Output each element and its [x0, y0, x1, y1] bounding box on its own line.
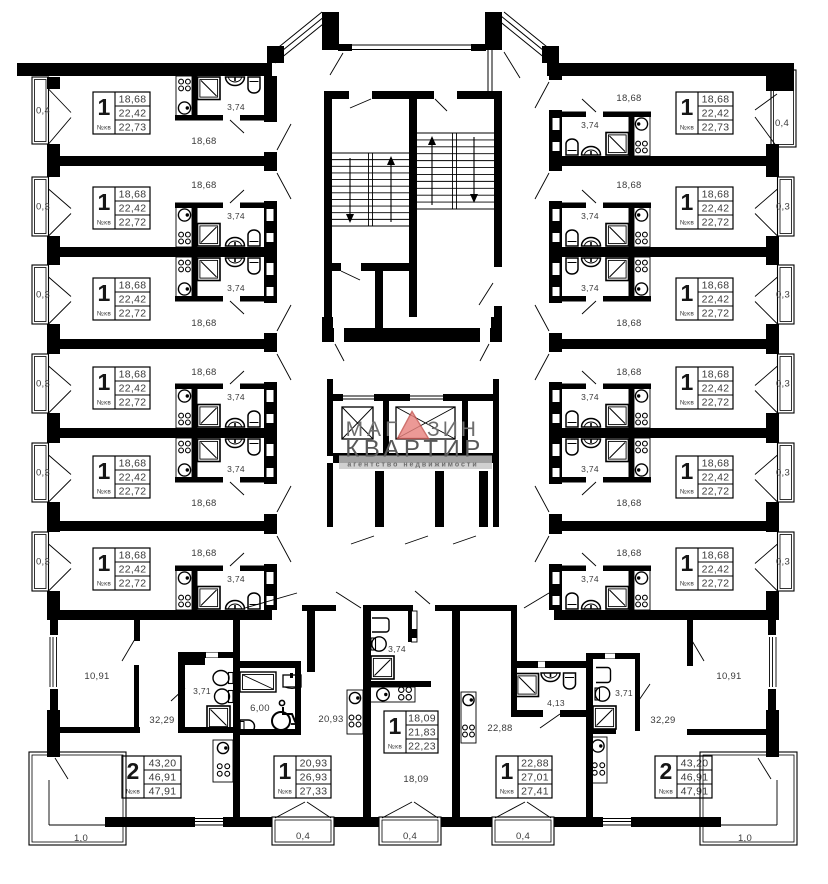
- svg-text:27,33: 27,33: [300, 786, 328, 798]
- svg-text:21,83: 21,83: [408, 727, 436, 739]
- svg-text:18,68: 18,68: [616, 93, 641, 104]
- svg-text:18,68: 18,68: [616, 498, 641, 509]
- svg-text:22,72: 22,72: [119, 217, 147, 229]
- svg-text:0,3: 0,3: [776, 557, 790, 568]
- svg-text:22,72: 22,72: [702, 217, 730, 229]
- svg-text:0,3: 0,3: [776, 468, 790, 479]
- svg-text:№кв: №кв: [680, 489, 694, 496]
- svg-text:0,4: 0,4: [296, 831, 310, 842]
- svg-text:3,74: 3,74: [227, 102, 245, 112]
- svg-text:1: 1: [680, 458, 693, 484]
- svg-text:10,91: 10,91: [716, 671, 741, 682]
- svg-text:1: 1: [97, 458, 110, 484]
- svg-text:22,42: 22,42: [119, 203, 147, 215]
- svg-text:18,68: 18,68: [119, 94, 147, 106]
- svg-text:22,72: 22,72: [119, 308, 147, 320]
- svg-text:18,68: 18,68: [191, 180, 216, 191]
- svg-text:0,3: 0,3: [36, 468, 50, 479]
- svg-text:18,68: 18,68: [702, 280, 730, 292]
- svg-text:18,68: 18,68: [702, 458, 730, 470]
- svg-text:22,42: 22,42: [119, 564, 147, 576]
- svg-text:22,42: 22,42: [702, 383, 730, 395]
- svg-text:43,20: 43,20: [149, 758, 177, 770]
- svg-text:КВАРТИР: КВАРТИР: [345, 436, 485, 463]
- svg-text:18,68: 18,68: [702, 94, 730, 106]
- svg-text:22,42: 22,42: [119, 472, 147, 484]
- svg-text:3,71: 3,71: [615, 688, 633, 698]
- svg-text:1: 1: [97, 280, 110, 306]
- svg-text:1: 1: [97, 550, 110, 576]
- svg-text:№кв: №кв: [388, 744, 402, 751]
- svg-text:22,42: 22,42: [119, 383, 147, 395]
- svg-text:1: 1: [680, 369, 693, 395]
- svg-text:3,74: 3,74: [581, 211, 599, 221]
- svg-text:22,72: 22,72: [119, 578, 147, 590]
- svg-text:1: 1: [97, 189, 110, 215]
- svg-text:20,93: 20,93: [318, 714, 343, 725]
- svg-text:№кв: №кв: [126, 789, 140, 796]
- svg-text:0,3: 0,3: [776, 379, 790, 390]
- svg-text:22,23: 22,23: [408, 741, 436, 753]
- svg-text:22,72: 22,72: [702, 308, 730, 320]
- svg-text:3,74: 3,74: [581, 283, 599, 293]
- svg-text:№кв: №кв: [680, 400, 694, 407]
- svg-text:46,91: 46,91: [149, 772, 177, 784]
- svg-text:№кв: №кв: [278, 789, 292, 796]
- svg-text:1: 1: [278, 758, 291, 784]
- svg-text:№кв: №кв: [97, 220, 111, 227]
- svg-text:20,93: 20,93: [300, 758, 328, 770]
- svg-text:22,42: 22,42: [702, 564, 730, 576]
- svg-text:№кв: №кв: [97, 125, 111, 132]
- svg-text:22,72: 22,72: [119, 397, 147, 409]
- svg-text:0,3: 0,3: [776, 202, 790, 213]
- svg-text:18,09: 18,09: [408, 713, 436, 725]
- svg-text:27,01: 27,01: [521, 772, 549, 784]
- svg-text:3,74: 3,74: [227, 574, 245, 584]
- svg-text:№кв: №кв: [500, 789, 514, 796]
- svg-text:22,73: 22,73: [119, 122, 147, 134]
- svg-text:18,68: 18,68: [191, 498, 216, 509]
- svg-text:3,71: 3,71: [193, 686, 211, 696]
- svg-text:18,68: 18,68: [119, 458, 147, 470]
- svg-text:1: 1: [97, 94, 110, 120]
- svg-text:22,72: 22,72: [119, 486, 147, 498]
- svg-text:22,88: 22,88: [487, 723, 512, 734]
- svg-text:18,68: 18,68: [616, 318, 641, 329]
- svg-text:18,09: 18,09: [403, 774, 428, 785]
- svg-text:0,3: 0,3: [36, 202, 50, 213]
- svg-text:3,74: 3,74: [581, 392, 599, 402]
- svg-text:№кв: №кв: [659, 789, 673, 796]
- svg-text:0,3: 0,3: [36, 557, 50, 568]
- svg-text:22,42: 22,42: [702, 294, 730, 306]
- svg-text:0,4: 0,4: [775, 118, 789, 129]
- svg-text:4,13: 4,13: [547, 698, 565, 708]
- svg-text:22,42: 22,42: [119, 294, 147, 306]
- svg-text:10,91: 10,91: [84, 671, 109, 682]
- svg-text:2: 2: [659, 758, 672, 784]
- svg-text:0,3: 0,3: [776, 290, 790, 301]
- svg-text:3,74: 3,74: [581, 574, 599, 584]
- svg-text:0,4: 0,4: [36, 106, 50, 117]
- svg-text:22,73: 22,73: [702, 122, 730, 134]
- svg-text:3,74: 3,74: [227, 464, 245, 474]
- svg-text:№кв: №кв: [97, 489, 111, 496]
- svg-text:3,74: 3,74: [388, 644, 406, 654]
- svg-text:22,72: 22,72: [702, 397, 730, 409]
- svg-text:18,68: 18,68: [702, 189, 730, 201]
- svg-text:18,68: 18,68: [119, 550, 147, 562]
- svg-text:агентство недвижимости: агентство недвижимости: [347, 462, 478, 469]
- svg-text:1: 1: [680, 189, 693, 215]
- svg-text:46,91: 46,91: [681, 772, 709, 784]
- svg-text:1: 1: [680, 94, 693, 120]
- svg-text:18,68: 18,68: [702, 550, 730, 562]
- svg-text:47,91: 47,91: [149, 786, 177, 798]
- svg-text:2: 2: [126, 758, 139, 784]
- svg-text:0,4: 0,4: [403, 831, 417, 842]
- svg-text:1: 1: [500, 758, 513, 784]
- svg-text:22,42: 22,42: [702, 108, 730, 120]
- svg-text:1: 1: [97, 369, 110, 395]
- svg-text:18,68: 18,68: [616, 548, 641, 559]
- svg-text:27,41: 27,41: [521, 786, 549, 798]
- svg-text:32,29: 32,29: [149, 715, 174, 726]
- svg-text:3,74: 3,74: [227, 283, 245, 293]
- svg-text:22,88: 22,88: [521, 758, 549, 770]
- svg-text:43,20: 43,20: [681, 758, 709, 770]
- svg-text:1,0: 1,0: [74, 833, 88, 844]
- svg-text:18,68: 18,68: [191, 136, 216, 147]
- svg-text:1,0: 1,0: [738, 833, 752, 844]
- svg-text:3,74: 3,74: [227, 392, 245, 402]
- svg-text:18,68: 18,68: [616, 367, 641, 378]
- svg-text:32,29: 32,29: [650, 715, 675, 726]
- svg-text:0,3: 0,3: [36, 290, 50, 301]
- svg-text:3,74: 3,74: [227, 211, 245, 221]
- svg-text:18,68: 18,68: [191, 548, 216, 559]
- svg-text:1: 1: [680, 280, 693, 306]
- svg-text:18,68: 18,68: [119, 189, 147, 201]
- svg-text:0,3: 0,3: [36, 379, 50, 390]
- svg-text:№кв: №кв: [680, 311, 694, 318]
- svg-text:18,68: 18,68: [702, 369, 730, 381]
- svg-text:22,42: 22,42: [702, 472, 730, 484]
- svg-text:0,4: 0,4: [516, 831, 530, 842]
- svg-text:18,68: 18,68: [191, 367, 216, 378]
- svg-text:22,42: 22,42: [119, 108, 147, 120]
- svg-text:3,74: 3,74: [581, 464, 599, 474]
- svg-text:6,00: 6,00: [250, 703, 270, 714]
- svg-text:18,68: 18,68: [616, 180, 641, 191]
- svg-text:26,93: 26,93: [300, 772, 328, 784]
- svg-text:22,42: 22,42: [702, 203, 730, 215]
- svg-text:22,72: 22,72: [702, 578, 730, 590]
- svg-text:№кв: №кв: [680, 125, 694, 132]
- svg-text:№кв: №кв: [97, 400, 111, 407]
- svg-text:№кв: №кв: [680, 581, 694, 588]
- svg-text:22,72: 22,72: [702, 486, 730, 498]
- svg-text:№кв: №кв: [97, 311, 111, 318]
- svg-text:№кв: №кв: [680, 220, 694, 227]
- svg-text:47,91: 47,91: [681, 786, 709, 798]
- svg-text:18,68: 18,68: [119, 369, 147, 381]
- svg-text:№кв: №кв: [97, 581, 111, 588]
- svg-text:1: 1: [388, 713, 401, 739]
- svg-text:3,74: 3,74: [581, 120, 599, 130]
- svg-text:18,68: 18,68: [119, 280, 147, 292]
- svg-text:1: 1: [680, 550, 693, 576]
- svg-text:18,68: 18,68: [191, 318, 216, 329]
